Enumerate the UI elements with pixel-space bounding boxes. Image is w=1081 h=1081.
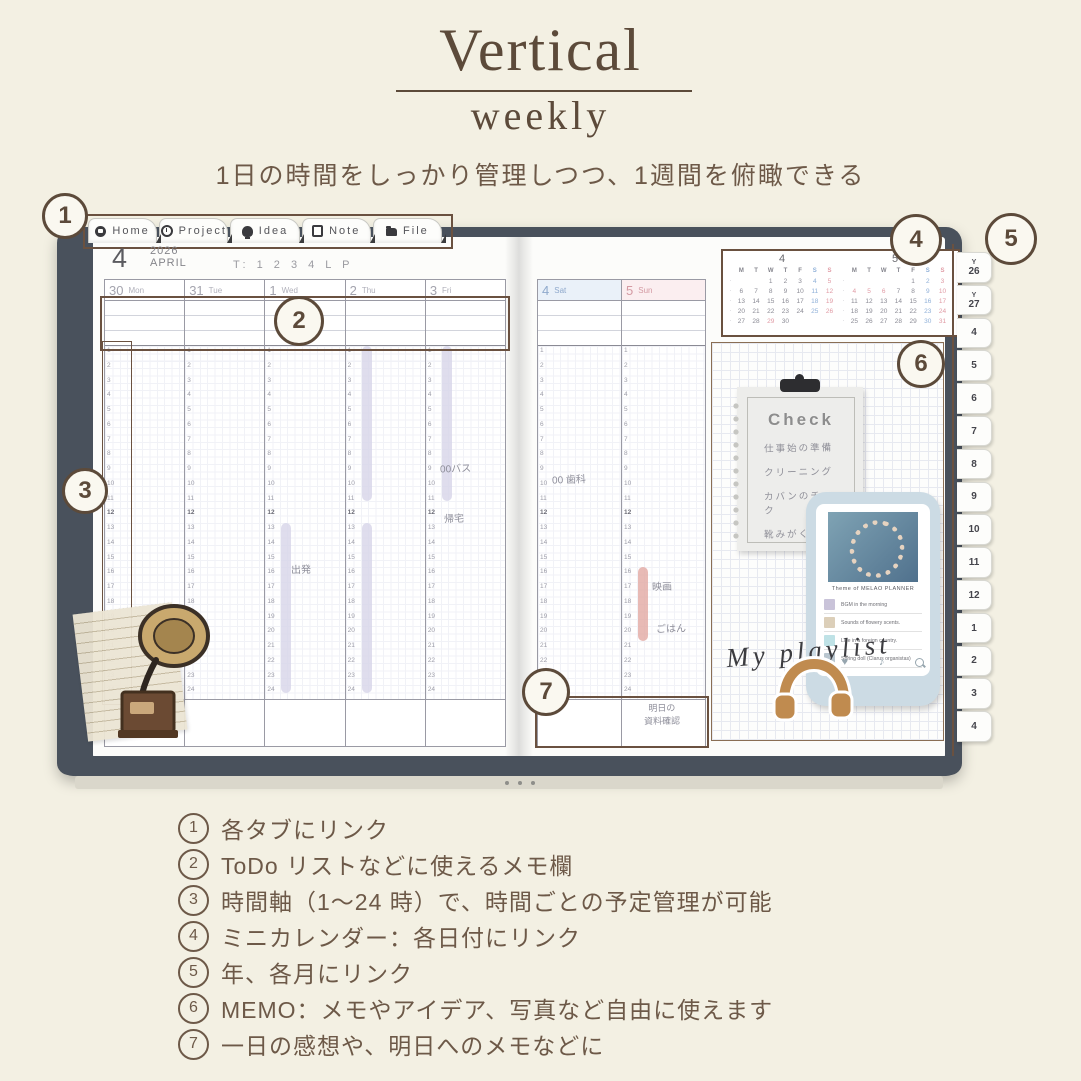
legend-number: 3 — [178, 885, 209, 916]
hour-label: 17 — [107, 583, 114, 590]
hour-label: 4 — [267, 391, 271, 398]
nav-tab-label: Note — [329, 225, 360, 237]
hour-label: 6 — [267, 421, 271, 428]
hour-label: 2 — [187, 362, 191, 369]
week-marker[interactable]: · — [840, 278, 847, 284]
hour-label: 14 — [540, 539, 547, 546]
hour-label: 6 — [624, 421, 628, 428]
side-tab-4[interactable]: 4 — [957, 318, 992, 349]
hour-label: 20 — [624, 627, 631, 634]
hour-label: 5 — [107, 406, 111, 413]
hour-label: 4 — [540, 391, 544, 398]
day-header-sun[interactable]: 5Sun — [622, 280, 705, 301]
annotation-circle-3: 3 — [62, 468, 108, 514]
calendar-date[interactable]: 17 — [935, 298, 950, 305]
side-tab-number: 10 — [968, 525, 979, 534]
side-tab-number: 5 — [971, 361, 977, 370]
calendar-date[interactable]: 3 — [935, 278, 950, 285]
legend-number: 7 — [178, 1029, 209, 1060]
calendar-week-row: ·11121314151617 — [840, 296, 950, 306]
annotation-circle-6: 6 — [897, 340, 945, 388]
calendar-date[interactable]: 24 — [935, 308, 950, 315]
track-title: Sounds of flowery scents. — [841, 620, 900, 626]
highlight-bar — [442, 346, 452, 501]
calendar-date[interactable]: 18 — [847, 308, 862, 315]
side-tab-Y27[interactable]: Y27 — [957, 285, 992, 316]
month-year-name: 2026 APRIL — [150, 245, 187, 269]
legend-item-4: 4ミニカレンダー：各日付にリンク — [178, 918, 773, 954]
nav-tab-idea[interactable]: Idea — [230, 218, 299, 243]
hour-label: 7 — [348, 436, 352, 443]
hour-label: 2 — [540, 362, 544, 369]
hour-label: 11 — [348, 495, 355, 502]
stand-dot — [505, 781, 509, 785]
legend-item-2: 2ToDo リストなどに使えるメモ欄 — [178, 846, 773, 882]
hour-label: 21 — [428, 642, 435, 649]
hour-label: 10 — [267, 480, 274, 487]
hour-label: 11 — [107, 495, 114, 502]
calendar-date[interactable]: 1 — [763, 278, 778, 285]
tracker-links[interactable]: T: 1 2 3 4 L P — [233, 259, 353, 271]
side-tab-Y26[interactable]: Y26 — [957, 252, 992, 283]
side-tab-3[interactable]: 3 — [957, 678, 992, 709]
calendar-date[interactable]: 23 — [920, 308, 935, 315]
side-tab-8[interactable]: 8 — [957, 449, 992, 480]
hour-label: 21 — [624, 642, 631, 649]
week-marker[interactable]: · — [727, 278, 734, 284]
page-subtitle: weekly — [0, 92, 1081, 139]
file-icon — [386, 228, 397, 236]
annotation-circle-2: 2 — [274, 296, 324, 346]
legend-text: ToDo リストなどに使えるメモ欄 — [221, 847, 573, 881]
hour-label: 3 — [267, 377, 271, 384]
day-memo-sat[interactable] — [538, 301, 621, 346]
side-tab-number: 6 — [971, 394, 977, 403]
side-tab-6[interactable]: 6 — [957, 383, 992, 414]
legend-item-6: 6MEMO：メモやアイデア、写真など自由に使えます — [178, 990, 773, 1026]
week-marker[interactable]: · — [840, 298, 847, 304]
calendar-date[interactable]: 22 — [763, 308, 778, 315]
hour-label: 24 — [348, 686, 355, 693]
calendar-date[interactable]: 12 — [822, 288, 837, 295]
hour-label: 5 — [187, 406, 191, 413]
day-hours-wed[interactable]: 123456789101112131415161718192021222324出… — [265, 346, 344, 700]
device-stand — [75, 776, 943, 789]
side-tab-12[interactable]: 12 — [957, 580, 992, 611]
hour-label: 5 — [428, 406, 432, 413]
day-column-thu[interactable]: 2Thu123456789101112131415161718192021222… — [346, 280, 426, 746]
hour-label: 6 — [187, 421, 191, 428]
calendar-date[interactable]: 16 — [778, 298, 793, 305]
hour-label: 20 — [267, 627, 274, 634]
hour-label: 12 — [624, 509, 631, 516]
side-tab-7[interactable]: 7 — [957, 416, 992, 447]
day-date: 5 — [626, 283, 633, 298]
wreath-image — [842, 513, 913, 586]
month-number[interactable]: 4 — [112, 243, 127, 274]
highlight-bar — [638, 567, 648, 641]
hour-label: 10 — [107, 480, 114, 487]
day-hours-sun[interactable]: 123456789101112131415161718192021222324映… — [622, 346, 705, 700]
calendar-date[interactable]: 25 — [807, 308, 822, 315]
calendar-date[interactable]: 14 — [891, 298, 906, 305]
day-of-week: Mon — [128, 286, 144, 295]
hour-label: 8 — [107, 450, 111, 457]
hour-label: 5 — [624, 406, 628, 413]
hour-label: 17 — [428, 583, 435, 590]
calendar-date[interactable]: 28 — [891, 318, 906, 325]
book-bottom-edge — [57, 756, 962, 775]
day-of-week: Tue — [209, 286, 223, 295]
calendar-date[interactable]: 25 — [847, 318, 862, 325]
week-marker[interactable]: · — [727, 308, 734, 314]
side-tab-number: 12 — [968, 591, 979, 600]
page: Vertical weekly 1日の時間をしっかり管理しつつ、1週間を俯瞰でき… — [0, 0, 1081, 1081]
calendar-date[interactable]: 12 — [862, 298, 877, 305]
hour-label: 6 — [540, 421, 544, 428]
calendar-date[interactable]: 22 — [906, 308, 921, 315]
hour-label: 2 — [267, 362, 271, 369]
calendar-date[interactable]: 29 — [906, 318, 921, 325]
hour-label: 14 — [187, 539, 194, 546]
calendar-date[interactable]: 26 — [822, 308, 837, 315]
hour-label: 11 — [428, 495, 435, 502]
day-header-tue[interactable]: 31Tue — [185, 280, 264, 301]
side-tab-number: 9 — [971, 492, 977, 501]
calendar-date[interactable]: 18 — [807, 298, 822, 305]
note-icon — [312, 225, 323, 237]
calendar-date[interactable]: 13 — [876, 298, 891, 305]
calendar-date[interactable]: 2 — [920, 278, 935, 285]
day-column-wed[interactable]: 1Wed123456789101112131415161718192021222… — [265, 280, 345, 746]
day-of-week: Sun — [638, 286, 652, 295]
hour-label: 2 — [624, 362, 628, 369]
day-column-sun[interactable]: 5Sun123456789101112131415161718192021222… — [622, 280, 705, 746]
hour-label: 13 — [267, 524, 274, 531]
calendar-week-row: ·18192021222324 — [840, 306, 950, 316]
hour-label: 9 — [624, 465, 628, 472]
hour-label: 23 — [428, 672, 435, 679]
hour-label: 1 — [624, 347, 628, 354]
side-tab-10[interactable]: 10 — [957, 514, 992, 545]
calendar-date[interactable]: 28 — [749, 318, 764, 325]
calendar-date[interactable]: 20 — [876, 308, 891, 315]
hour-label: 6 — [428, 421, 432, 428]
hour-label: 12 — [348, 509, 355, 516]
hour-label: 13 — [540, 524, 547, 531]
calendar-dow-row: MTWTFSS — [727, 266, 837, 276]
hour-label: 7 — [187, 436, 191, 443]
hour-label: 8 — [624, 450, 628, 457]
calendar-date[interactable]: 6 — [734, 288, 749, 295]
day-header-fri[interactable]: 3Fri — [426, 280, 505, 301]
stand-dot — [518, 781, 522, 785]
dow-label: T — [862, 268, 877, 274]
nav-tab-label: Idea — [259, 225, 288, 237]
day-column-fri[interactable]: 3Fri123456789101112131415161718192021222… — [426, 280, 505, 746]
dow-label: W — [763, 268, 778, 274]
day-header-sat[interactable]: 4Sat — [538, 280, 621, 301]
side-tab-number: 2 — [971, 656, 977, 665]
calendar-date[interactable]: 11 — [847, 298, 862, 305]
hour-label: 10 — [540, 480, 547, 487]
side-tab-number: 4 — [971, 722, 977, 731]
side-tab-5[interactable]: 5 — [957, 350, 992, 381]
handwritten-entry: 映画 — [652, 577, 673, 593]
hour-label: 24 — [428, 686, 435, 693]
check-title: Check — [748, 410, 854, 430]
calendar-date[interactable]: 20 — [734, 308, 749, 315]
hour-label: 8 — [428, 450, 432, 457]
hour-label: 21 — [540, 642, 547, 649]
hour-label: 15 — [624, 554, 631, 561]
hour-label: 3 — [348, 377, 352, 384]
nav-tab-bar: HomeProjectIdeaNoteFile — [88, 218, 444, 243]
gramophone-sticker — [96, 590, 256, 748]
hour-label: 12 — [540, 509, 547, 516]
hour-label: 22 — [348, 657, 355, 664]
hour-label: 24 — [267, 686, 274, 693]
day-of-week: Fri — [442, 286, 451, 295]
calendar-date[interactable]: 16 — [920, 298, 935, 305]
nav-tab-note[interactable]: Note — [302, 218, 371, 243]
calendar-date[interactable]: 11 — [807, 288, 822, 295]
hour-label: 4 — [624, 391, 628, 398]
hour-label: 8 — [267, 450, 271, 457]
day-memo-mon[interactable] — [105, 301, 184, 346]
dow-label: T — [778, 268, 793, 274]
week-marker[interactable]: · — [840, 288, 847, 294]
calendar-date[interactable]: 10 — [793, 288, 808, 295]
calendar-date[interactable]: 7 — [891, 288, 906, 295]
hour-label: 8 — [540, 450, 544, 457]
stand-dot — [531, 781, 535, 785]
album-art — [828, 512, 918, 582]
hour-label: 11 — [540, 495, 547, 502]
week-marker[interactable]: · — [840, 318, 847, 324]
week-marker[interactable]: · — [727, 318, 734, 324]
dow-label: T — [891, 268, 906, 274]
hour-label: 7 — [107, 436, 111, 443]
track-thumbnail — [824, 599, 835, 610]
dow-label: W — [876, 268, 891, 274]
track-row: BGM in the morning — [824, 596, 922, 614]
calendar-date[interactable]: 2 — [778, 278, 793, 285]
hour-label: 15 — [267, 554, 274, 561]
calendar-date[interactable]: 15 — [763, 298, 778, 305]
hour-label: 8 — [348, 450, 352, 457]
day-date: 2 — [350, 283, 357, 298]
hour-label: 12 — [428, 509, 435, 516]
handwritten-entry: 出発 — [291, 561, 312, 577]
calendar-date[interactable]: 21 — [749, 308, 764, 315]
hour-label: 3 — [428, 377, 432, 384]
day-hours-fri[interactable]: 1234567891011121314151617181920212223240… — [426, 346, 505, 700]
hour-label: 5 — [540, 406, 544, 413]
legend-text: ミニカレンダー：各日付にリンク — [221, 919, 581, 953]
calendar-date[interactable]: 5 — [822, 278, 837, 285]
calendar-date[interactable]: 1 — [906, 278, 921, 285]
hour-label: 14 — [348, 539, 355, 546]
hour-label: 22 — [624, 657, 631, 664]
calendar-date[interactable]: 30 — [920, 318, 935, 325]
hour-label: 23 — [267, 672, 274, 679]
day-hours-thu[interactable]: 123456789101112131415161718192021222324 — [346, 346, 425, 700]
calendar-date[interactable]: 13 — [734, 298, 749, 305]
dow-label: M — [734, 268, 749, 274]
calendar-date[interactable]: 21 — [891, 308, 906, 315]
nav-tab-label: Home — [112, 225, 149, 237]
side-tab-4[interactable]: 4 — [957, 711, 992, 742]
day-memo-thu[interactable] — [346, 301, 425, 346]
legend-number: 5 — [178, 957, 209, 988]
day-footer-wed[interactable] — [265, 700, 344, 746]
day-of-week: Thu — [362, 286, 376, 295]
highlight-bar — [362, 346, 372, 501]
hour-label: 22 — [267, 657, 274, 664]
calendar-date[interactable]: 31 — [935, 318, 950, 325]
hour-label: 13 — [348, 524, 355, 531]
hour-label: 15 — [348, 554, 355, 561]
calendar-date[interactable]: 29 — [763, 318, 778, 325]
hour-label: 14 — [107, 539, 114, 546]
nav-tab-project[interactable]: Project — [159, 218, 228, 243]
calendar-date[interactable]: 8 — [763, 288, 778, 295]
hour-label: 19 — [267, 613, 274, 620]
calendar-date[interactable]: 26 — [862, 318, 877, 325]
calendar-week-row: ·45678910 — [840, 286, 950, 296]
hour-label: 17 — [187, 583, 194, 590]
calendar-date[interactable]: 4 — [847, 288, 862, 295]
hour-label: 16 — [348, 568, 355, 575]
hour-label: 21 — [267, 642, 274, 649]
legend-number: 2 — [178, 849, 209, 880]
calendar-date[interactable]: 30 — [778, 318, 793, 325]
legend-number: 4 — [178, 921, 209, 952]
calendar-date[interactable]: 14 — [749, 298, 764, 305]
calendar-week-row: ·12345 — [727, 276, 837, 286]
hour-label: 1 — [187, 347, 191, 354]
hour-label: 18 — [348, 598, 355, 605]
nav-tab-home[interactable]: Home — [88, 218, 157, 243]
month-name-label: APRIL — [150, 257, 187, 269]
calendar-date[interactable]: 27 — [876, 318, 891, 325]
calendar-date[interactable]: 5 — [862, 288, 877, 295]
annotation-circle-1: 1 — [42, 193, 88, 239]
calendar-date[interactable]: 3 — [793, 278, 808, 285]
hour-label: 10 — [624, 480, 631, 487]
side-tab-11[interactable]: 11 — [957, 547, 992, 578]
day-memo-fri[interactable] — [426, 301, 505, 346]
hour-label: 1 — [540, 347, 544, 354]
hour-label: 14 — [267, 539, 274, 546]
hour-label: 9 — [540, 465, 544, 472]
calendar-date[interactable]: 27 — [734, 318, 749, 325]
calendar-date[interactable]: 4 — [807, 278, 822, 285]
hour-label: 9 — [428, 465, 432, 472]
side-tab-1[interactable]: 1 — [957, 613, 992, 644]
week-marker[interactable]: · — [727, 298, 734, 304]
day-header-thu[interactable]: 2Thu — [346, 280, 425, 301]
day-date: 3 — [430, 283, 437, 298]
annotation-circle-4: 4 — [890, 214, 942, 266]
calendar-date[interactable]: 9 — [920, 288, 935, 295]
calendar-date[interactable]: 19 — [862, 308, 877, 315]
calendar-date[interactable]: 10 — [935, 288, 950, 295]
hour-label: 6 — [348, 421, 352, 428]
side-tab-9[interactable]: 9 — [957, 482, 992, 513]
week-marker[interactable]: · — [840, 308, 847, 314]
hour-label: 5 — [267, 406, 271, 413]
side-tab-number: 3 — [971, 689, 977, 698]
calendar-month-title[interactable]: 4 — [727, 253, 837, 266]
calendar-week-row: ·25262728293031 — [840, 316, 950, 326]
side-tab-bar: Y26Y274567891011121234 — [957, 252, 991, 744]
legend-text: 時間軸（1～24 時）で、時間ごとの予定管理が可能 — [221, 883, 773, 917]
tomorrow-note: 明日の 資料確認 — [622, 701, 702, 728]
day-footer-thu[interactable] — [346, 700, 425, 746]
legend-text: MEMO：メモやアイデア、写真など自由に使えます — [221, 991, 773, 1025]
hour-label: 15 — [187, 554, 194, 561]
day-date: 4 — [542, 283, 549, 298]
dow-label: F — [906, 268, 921, 274]
hour-label: 17 — [624, 583, 631, 590]
calendar-date[interactable]: 19 — [822, 298, 837, 305]
home-icon — [95, 226, 106, 237]
day-hours-sat[interactable]: 1234567891011121314151617181920212223240… — [538, 346, 621, 700]
idea-icon — [242, 226, 253, 237]
hour-label: 2 — [348, 362, 352, 369]
check-item: クリーニング — [764, 463, 854, 479]
week-marker[interactable]: · — [727, 288, 734, 294]
spiral-binding — [731, 401, 741, 541]
calendar-week-row: ·27282930 — [727, 316, 837, 326]
calendar-date[interactable]: 24 — [793, 308, 808, 315]
hour-label: 17 — [540, 583, 547, 590]
calendar-date[interactable]: 9 — [778, 288, 793, 295]
page-title: Vertical — [0, 16, 1081, 85]
calendar-date[interactable]: 17 — [793, 298, 808, 305]
side-tab-2[interactable]: 2 — [957, 646, 992, 677]
day-header-mon[interactable]: 30Mon — [105, 280, 184, 301]
hour-label: 12 — [107, 509, 114, 516]
calendar-date[interactable]: 7 — [749, 288, 764, 295]
hour-label: 2 — [107, 362, 111, 369]
calendar-date[interactable]: 15 — [906, 298, 921, 305]
day-date: 30 — [109, 283, 123, 298]
calendar-date[interactable]: 6 — [876, 288, 891, 295]
hour-label: 22 — [540, 657, 547, 664]
handwritten-entry: 00バス — [440, 459, 472, 475]
calendar-date[interactable]: 8 — [906, 288, 921, 295]
hour-label: 16 — [428, 568, 435, 575]
day-memo-tue[interactable] — [185, 301, 264, 346]
hour-label: 5 — [348, 406, 352, 413]
hour-label: 18 — [267, 598, 274, 605]
hour-label: 10 — [428, 480, 435, 487]
day-of-week: Wed — [282, 286, 298, 295]
nav-tab-file[interactable]: File — [373, 218, 442, 243]
annotation-line-side-tabs — [952, 244, 954, 759]
day-footer-fri[interactable] — [426, 700, 505, 746]
day-memo-sun[interactable] — [622, 301, 705, 346]
hour-label: 4 — [187, 391, 191, 398]
day-date: 1 — [269, 283, 276, 298]
legend-item-7: 7一日の感想や、明日へのメモなどに — [178, 1026, 773, 1062]
nav-tab-label: File — [403, 225, 429, 237]
calendar-date[interactable]: 23 — [778, 308, 793, 315]
legend-text: 各タブにリンク — [221, 811, 389, 845]
